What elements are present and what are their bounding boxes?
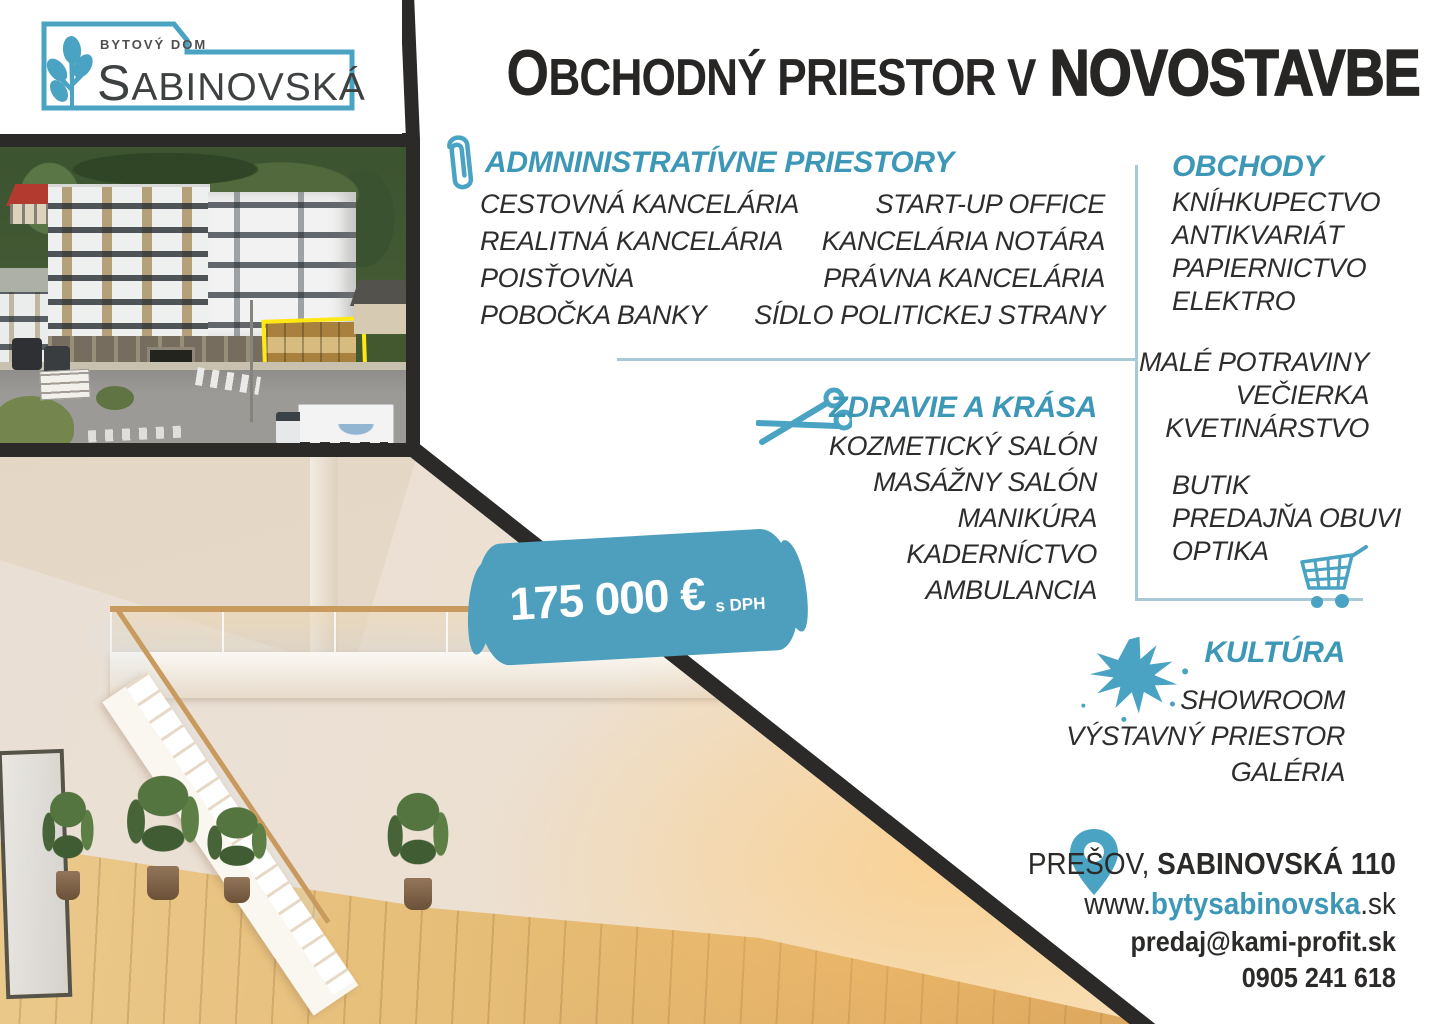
price-amount: 175 000 € (508, 570, 706, 627)
list-item: KOZMETICKÝ SALÓN (829, 428, 1097, 464)
web-prefix: www. (1084, 886, 1151, 921)
logo-tagline: BYTOVÝ DOM (100, 38, 207, 51)
gray-roof-house-wall (354, 304, 410, 334)
list-item: MANIKÚRA (829, 500, 1097, 536)
section-heading-health: ZDRAVIE A KRÁSA (829, 393, 1097, 423)
phone-number[interactable]: 0905 241 618 (1028, 960, 1396, 996)
section-heading-culture: KULTÚRA (1204, 638, 1345, 668)
list-item: MALÉ POTRAVINY (1139, 346, 1369, 379)
list-item: POBOČKA BANKY (480, 297, 799, 334)
list-item: KANCELÁRIA NOTÁRA (754, 223, 1105, 260)
list-item: VÝSTAVNÝ PRIESTOR (1066, 718, 1345, 754)
city: PREŠOV, (1028, 846, 1149, 881)
title-lead: OBCHODNÝ PRIESTOR V (506, 40, 1035, 105)
flyer-poster: BYTOVÝ DOM SABINOVSKÁ OBCHODNÝ PRIESTOR … (0, 0, 1448, 1024)
admin-items-right: START-UP OFFICE KANCELÁRIA NOTÁRA PRÁVNA… (754, 186, 1105, 334)
street-address: SABINOVSKÁ 110 (1157, 846, 1396, 881)
list-item: MASÁŽNY SALÓN (829, 464, 1097, 500)
list-item: VEČIERKA (1139, 379, 1369, 412)
list-item: AMBULANCIA (829, 572, 1097, 608)
shops-items-group2: MALÉ POTRAVINY VEČIERKA KVETINÁRSTVO (1139, 346, 1369, 445)
potted-plant (36, 778, 100, 900)
address-line: PREŠOV, SABINOVSKÁ 110 (1028, 844, 1396, 884)
list-item: REALITNÁ KANCELÁRIA (480, 223, 799, 260)
logo-tree-icon (43, 35, 97, 107)
website-link[interactable]: www.bytysabinovska.sk (1028, 884, 1396, 924)
price-badge: 175 000 € s DPH (474, 527, 800, 667)
potted-plant (380, 778, 456, 910)
parked-van (12, 338, 42, 370)
list-item: KADERNÍCTVO (829, 536, 1097, 572)
shopping-cart-icon (1292, 540, 1370, 610)
section-heading-admin: ADMNINISTRATÍVNE PRIESTORY (485, 148, 954, 178)
logo: BYTOVÝ DOM SABINOVSKÁ (0, 0, 402, 134)
truck-logo (330, 424, 382, 440)
price-vat-note: s DPH (715, 594, 766, 614)
light-pole (250, 300, 253, 422)
list-item: SÍDLO POLITICKEJ STRANY (754, 297, 1105, 334)
health-items: KOZMETICKÝ SALÓN MASÁŽNY SALÓN MANIKÚRA … (829, 428, 1097, 608)
list-item: KVETINÁRSTVO (1139, 412, 1369, 445)
divider-horizontal (617, 358, 1136, 361)
list-item: GALÉRIA (1066, 754, 1345, 790)
potted-plant (118, 760, 208, 900)
gray-roof-house (350, 280, 413, 306)
potted-plant (200, 795, 274, 903)
divider-vertical (1135, 165, 1138, 601)
list-item: POISŤOVŇA (480, 260, 799, 297)
page-title: OBCHODNÝ PRIESTOR V NOVOSTAVBE (506, 40, 1420, 105)
bush (96, 386, 134, 410)
building-aerial-photo (0, 140, 413, 450)
building-main-facade (48, 184, 210, 338)
list-item: SHOWROOM (1066, 682, 1345, 718)
section-heading-shops: OBCHODY (1172, 152, 1323, 182)
logo-name: SABINOVSKÁ (97, 56, 366, 111)
admin-items-left: CESTOVNÁ KANCELÁRIA REALITNÁ KANCELÁRIA … (480, 186, 799, 334)
title-emphasis: NOVOSTAVBE (1050, 40, 1420, 105)
list-item: PRÁVNA KANCELÁRIA (754, 260, 1105, 297)
list-item: PAPIERNICTVO (1172, 252, 1380, 285)
shops-items-group1: KNÍHKUPECTVO ANTIKVARIÁT PAPIERNICTVO EL… (1172, 186, 1380, 318)
list-item: PREDAJŇA OBUVI (1172, 502, 1401, 535)
list-item: START-UP OFFICE (754, 186, 1105, 223)
construction-sign (39, 369, 90, 401)
list-item: BUTIK (1172, 469, 1401, 502)
web-tld: .sk (1360, 886, 1396, 921)
paperclip-icon (434, 124, 481, 200)
list-item: CESTOVNÁ KANCELÁRIA (480, 186, 799, 223)
email-link[interactable]: predaj@kami-profit.sk (1028, 924, 1396, 960)
contact-block: PREŠOV, SABINOVSKÁ 110 www.bytysabinovsk… (1028, 844, 1396, 996)
terrace-roof (0, 268, 52, 294)
delivery-truck-cab (276, 412, 300, 444)
web-name: bytysabinovska (1151, 886, 1360, 921)
list-item: ELEKTRO (1172, 285, 1380, 318)
list-item: ANTIKVARIÁT (1172, 219, 1380, 252)
list-item: KNÍHKUPECTVO (1172, 186, 1380, 219)
culture-items: SHOWROOM VÝSTAVNÝ PRIESTOR GALÉRIA (1066, 682, 1345, 790)
